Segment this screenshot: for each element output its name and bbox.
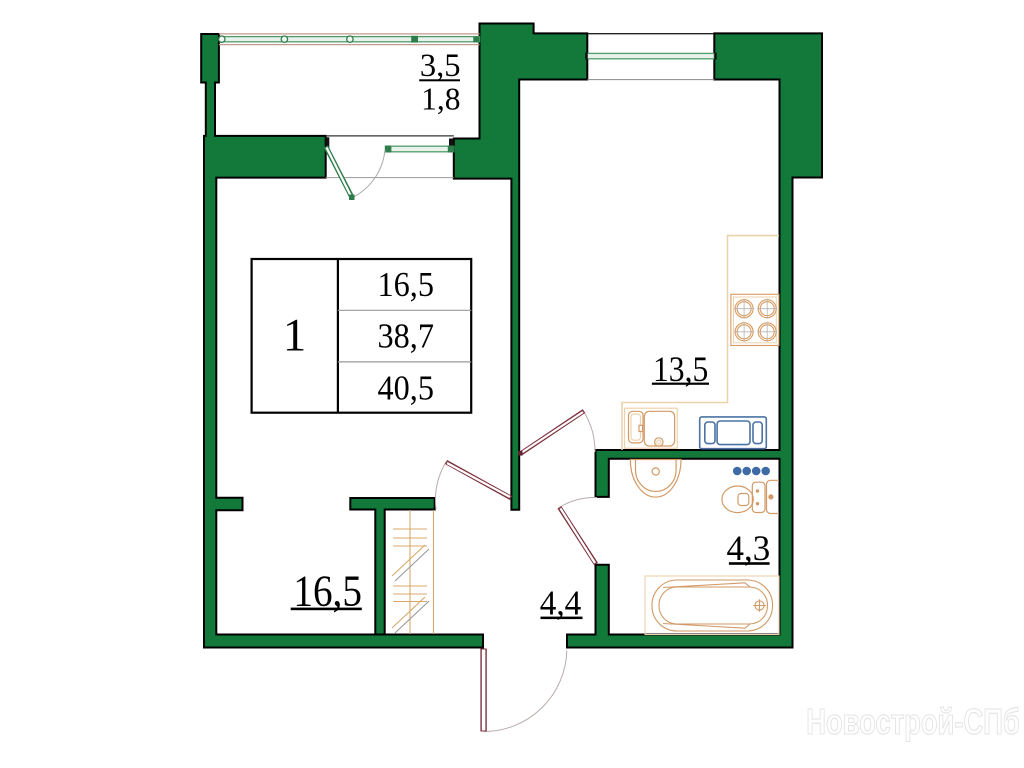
svg-text:Новострой-СПб: Новострой-СПб [806,701,1020,742]
svg-text:1,8: 1,8 [421,82,460,117]
svg-text:16,5: 16,5 [378,266,434,304]
svg-text:3,5: 3,5 [420,48,461,84]
svg-text:40,5: 40,5 [378,369,434,407]
svg-text:1: 1 [283,310,306,362]
svg-text:38,7: 38,7 [378,318,434,356]
